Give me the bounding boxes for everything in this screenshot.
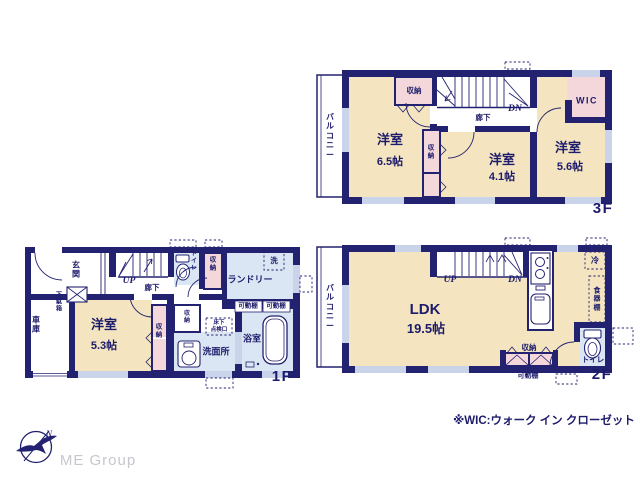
label-3f-dn: DN — [508, 105, 522, 115]
label-3f-room1-size: 6.5帖 — [377, 157, 403, 169]
stairs-1f — [118, 253, 168, 277]
label-2f-ldk: LDK — [410, 302, 441, 318]
label-3f-floor: 3F — [593, 201, 614, 217]
entrance-step-lines — [101, 253, 105, 294]
label-1f-hatch-2: 点検口 — [211, 328, 228, 334]
label-2f-closet: 収納 — [522, 344, 537, 352]
label-1f-floor: 1F — [272, 369, 293, 385]
wic-note: ※WIC:ウォーク イン クローゼット — [453, 415, 635, 427]
label-3f-room2-size: 4.1帖 — [489, 172, 515, 184]
label-3f-room1: 洋室 — [377, 133, 403, 147]
label-2f-shelf: 可動棚 — [518, 372, 539, 379]
label-1f-shoe-box: 下駄箱 — [56, 292, 62, 313]
label-1f-closet-mid: 収納 — [156, 323, 163, 338]
kitchen-counter — [528, 250, 553, 330]
label-2f-cupboard: 食器棚 — [594, 288, 601, 313]
label-2f-ldk-size: 19.5帖 — [407, 322, 445, 336]
door-arc-entrance — [35, 253, 62, 280]
label-1f-shelf-right: 可動棚 — [266, 304, 286, 311]
label-2f-fridge: 冷 — [591, 257, 599, 265]
floor-plan-3f — [310, 55, 640, 225]
shoe-box — [67, 287, 87, 302]
label-3f-room2: 洋室 — [489, 153, 515, 167]
stairwell-dashed-3f — [505, 62, 530, 69]
label-3f-closet-top: 収納 — [407, 87, 422, 95]
label-1f-entrance: 玄関 — [72, 261, 80, 280]
label-1f-washer: 洗 — [270, 257, 278, 265]
label-2f-floor: 2F — [592, 367, 613, 383]
toilet-2f-fixture — [584, 330, 601, 358]
label-1f-laundry: ランドリー — [227, 275, 272, 284]
floor-plan-page: バルコニー 収納 DN 廊下 収納 洋室 6.5帖 洋室 4.1帖 洋室 5.6… — [0, 0, 640, 480]
label-3f-balcony: バルコニー — [326, 112, 334, 159]
label-1f-up: UP — [123, 277, 136, 287]
label-3f-closet-mid: 収納 — [428, 144, 435, 159]
label-2f-dn: DN — [508, 276, 522, 286]
label-3f-wic: WIC — [576, 96, 598, 105]
room-3f-4_1 — [440, 132, 530, 197]
garage-door — [33, 371, 67, 378]
label-3f-hallway: 廊下 — [476, 114, 491, 122]
label-1f-room-size: 5.3帖 — [91, 341, 117, 353]
label-1f-bath: 浴室 — [243, 334, 261, 343]
label-1f-toilet: トイレ — [191, 251, 197, 272]
label-3f-room3-size: 5.6帖 — [557, 162, 583, 174]
toilet-1f-fixture — [176, 255, 190, 280]
label-2f-up: UP — [444, 276, 457, 286]
label-1f-hatch-1: 床下 — [213, 321, 224, 327]
room-1f-5_3 — [75, 300, 152, 371]
label-3f-room3: 洋室 — [555, 141, 581, 155]
logo-text: ME Group — [60, 453, 136, 469]
label-2f-toilet: トイレ — [582, 356, 605, 364]
label-1f-closet-small: 収納 — [184, 311, 190, 325]
label-1f-washroom: 洗面所 — [202, 347, 229, 356]
compass: N — [12, 424, 64, 476]
label-2f-balcony: バルコニー — [326, 283, 334, 330]
label-1f-shelf-left: 可動棚 — [238, 304, 258, 311]
label-1f-garage: 車庫 — [32, 316, 40, 335]
compass-n-label: N — [45, 429, 53, 439]
stairs-2f-area — [437, 252, 530, 277]
label-1f-room: 洋室 — [91, 318, 117, 332]
label-1f-hallway: 廊下 — [145, 284, 160, 292]
washroom-sink — [178, 341, 200, 367]
label-1f-closet-top: 収納 — [210, 256, 217, 271]
